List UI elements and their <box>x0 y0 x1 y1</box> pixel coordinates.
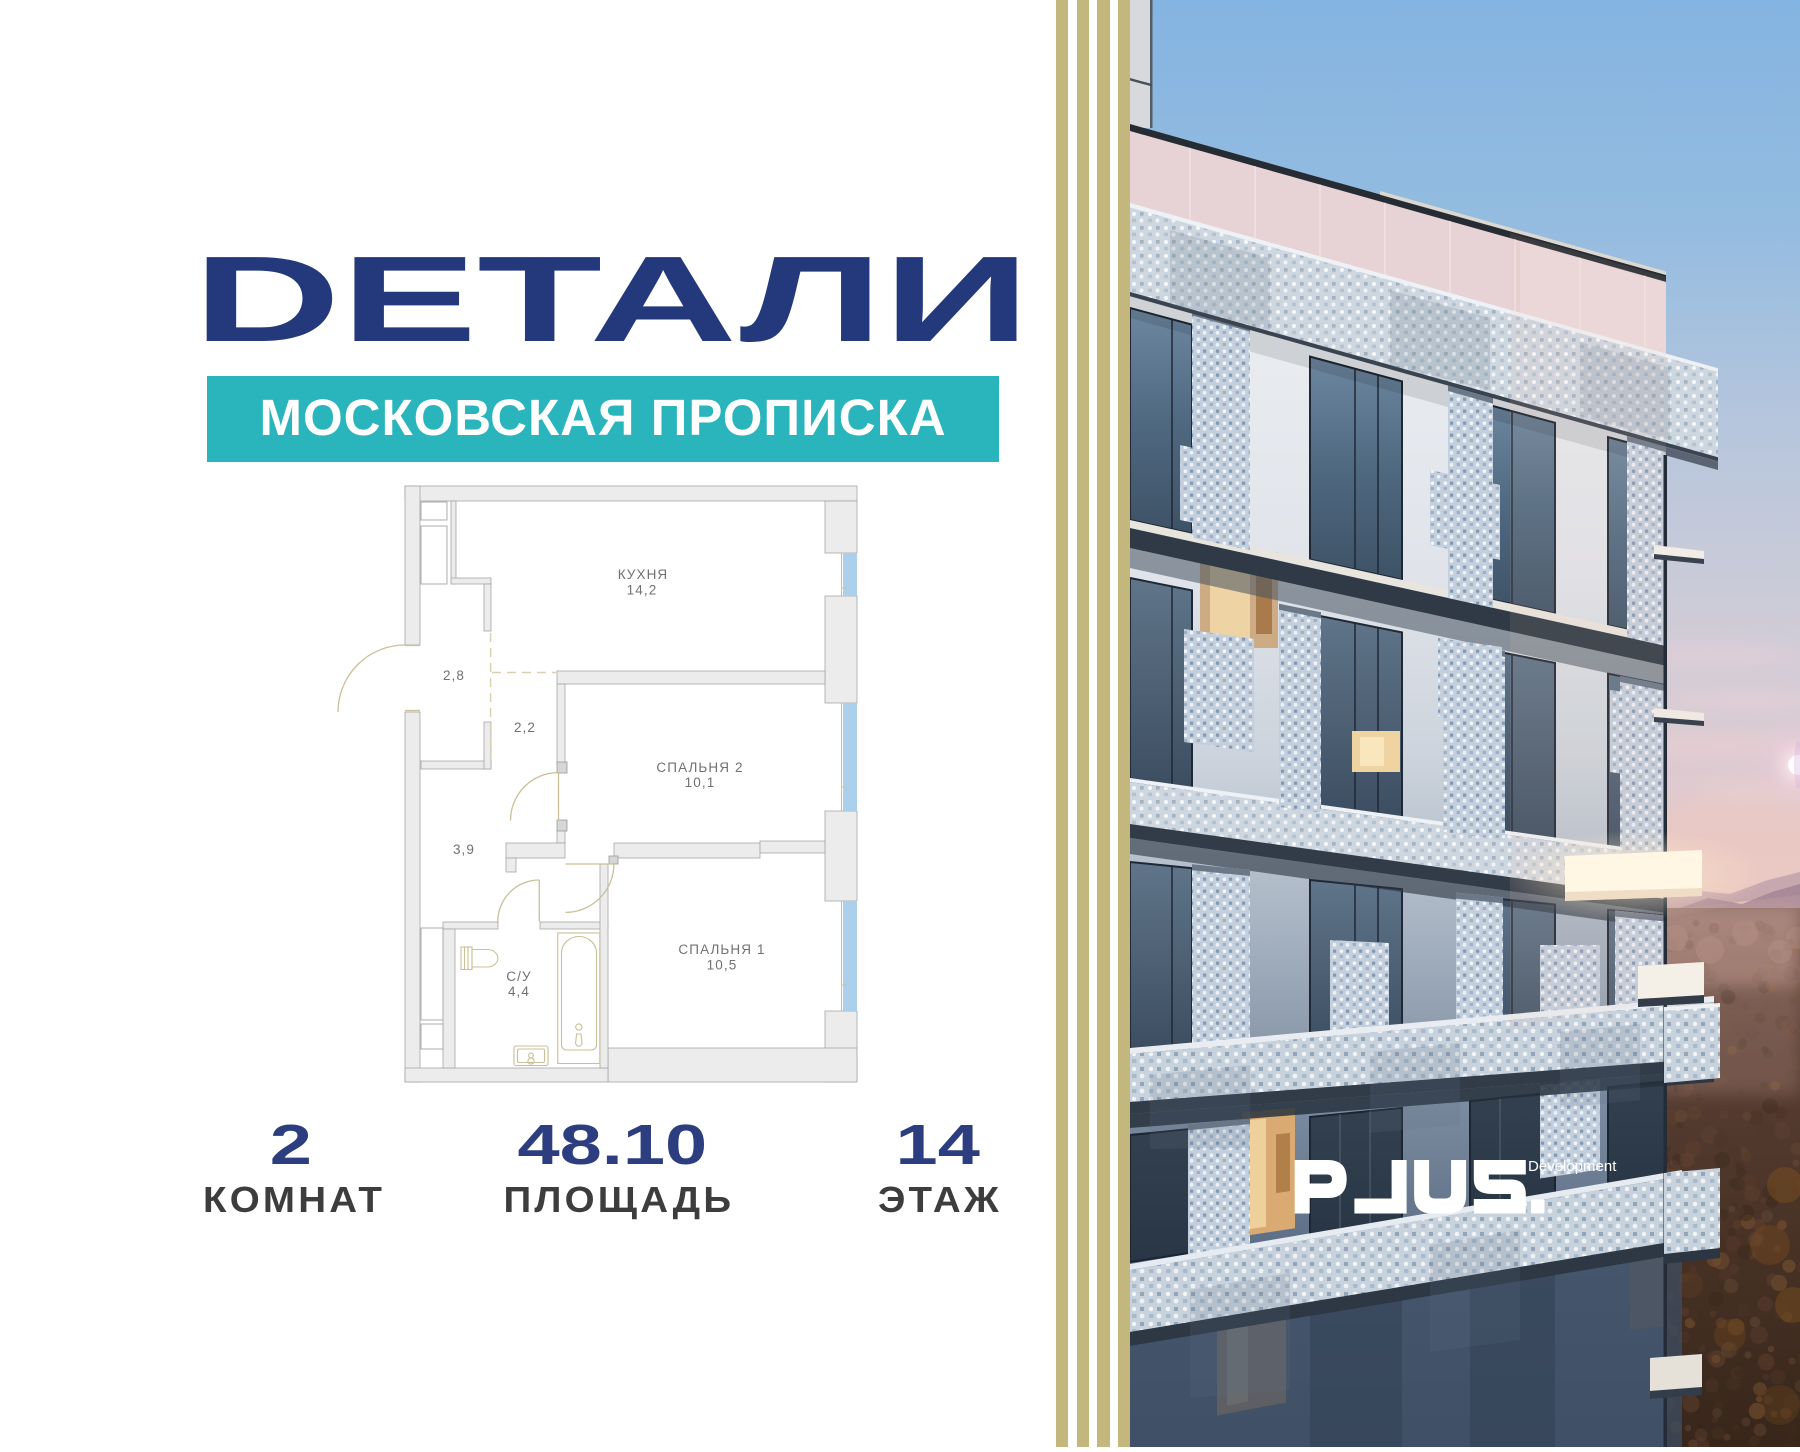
svg-text:10,5: 10,5 <box>707 958 738 973</box>
svg-text:3,9: 3,9 <box>453 842 475 857</box>
svg-text:КУХНЯ: КУХНЯ <box>618 567 669 582</box>
svg-text:2,8: 2,8 <box>443 668 465 683</box>
svg-text:2,2: 2,2 <box>514 720 536 735</box>
svg-text:Development: Development <box>1528 1158 1617 1175</box>
svg-text:СПАЛЬНЯ 2: СПАЛЬНЯ 2 <box>656 760 743 775</box>
svg-text:С/У: С/У <box>506 969 531 984</box>
svg-text:10,1: 10,1 <box>685 775 716 790</box>
svg-text:4,4: 4,4 <box>508 984 530 999</box>
svg-text:14,2: 14,2 <box>627 583 658 598</box>
svg-text:СПАЛЬНЯ 1: СПАЛЬНЯ 1 <box>678 942 765 957</box>
